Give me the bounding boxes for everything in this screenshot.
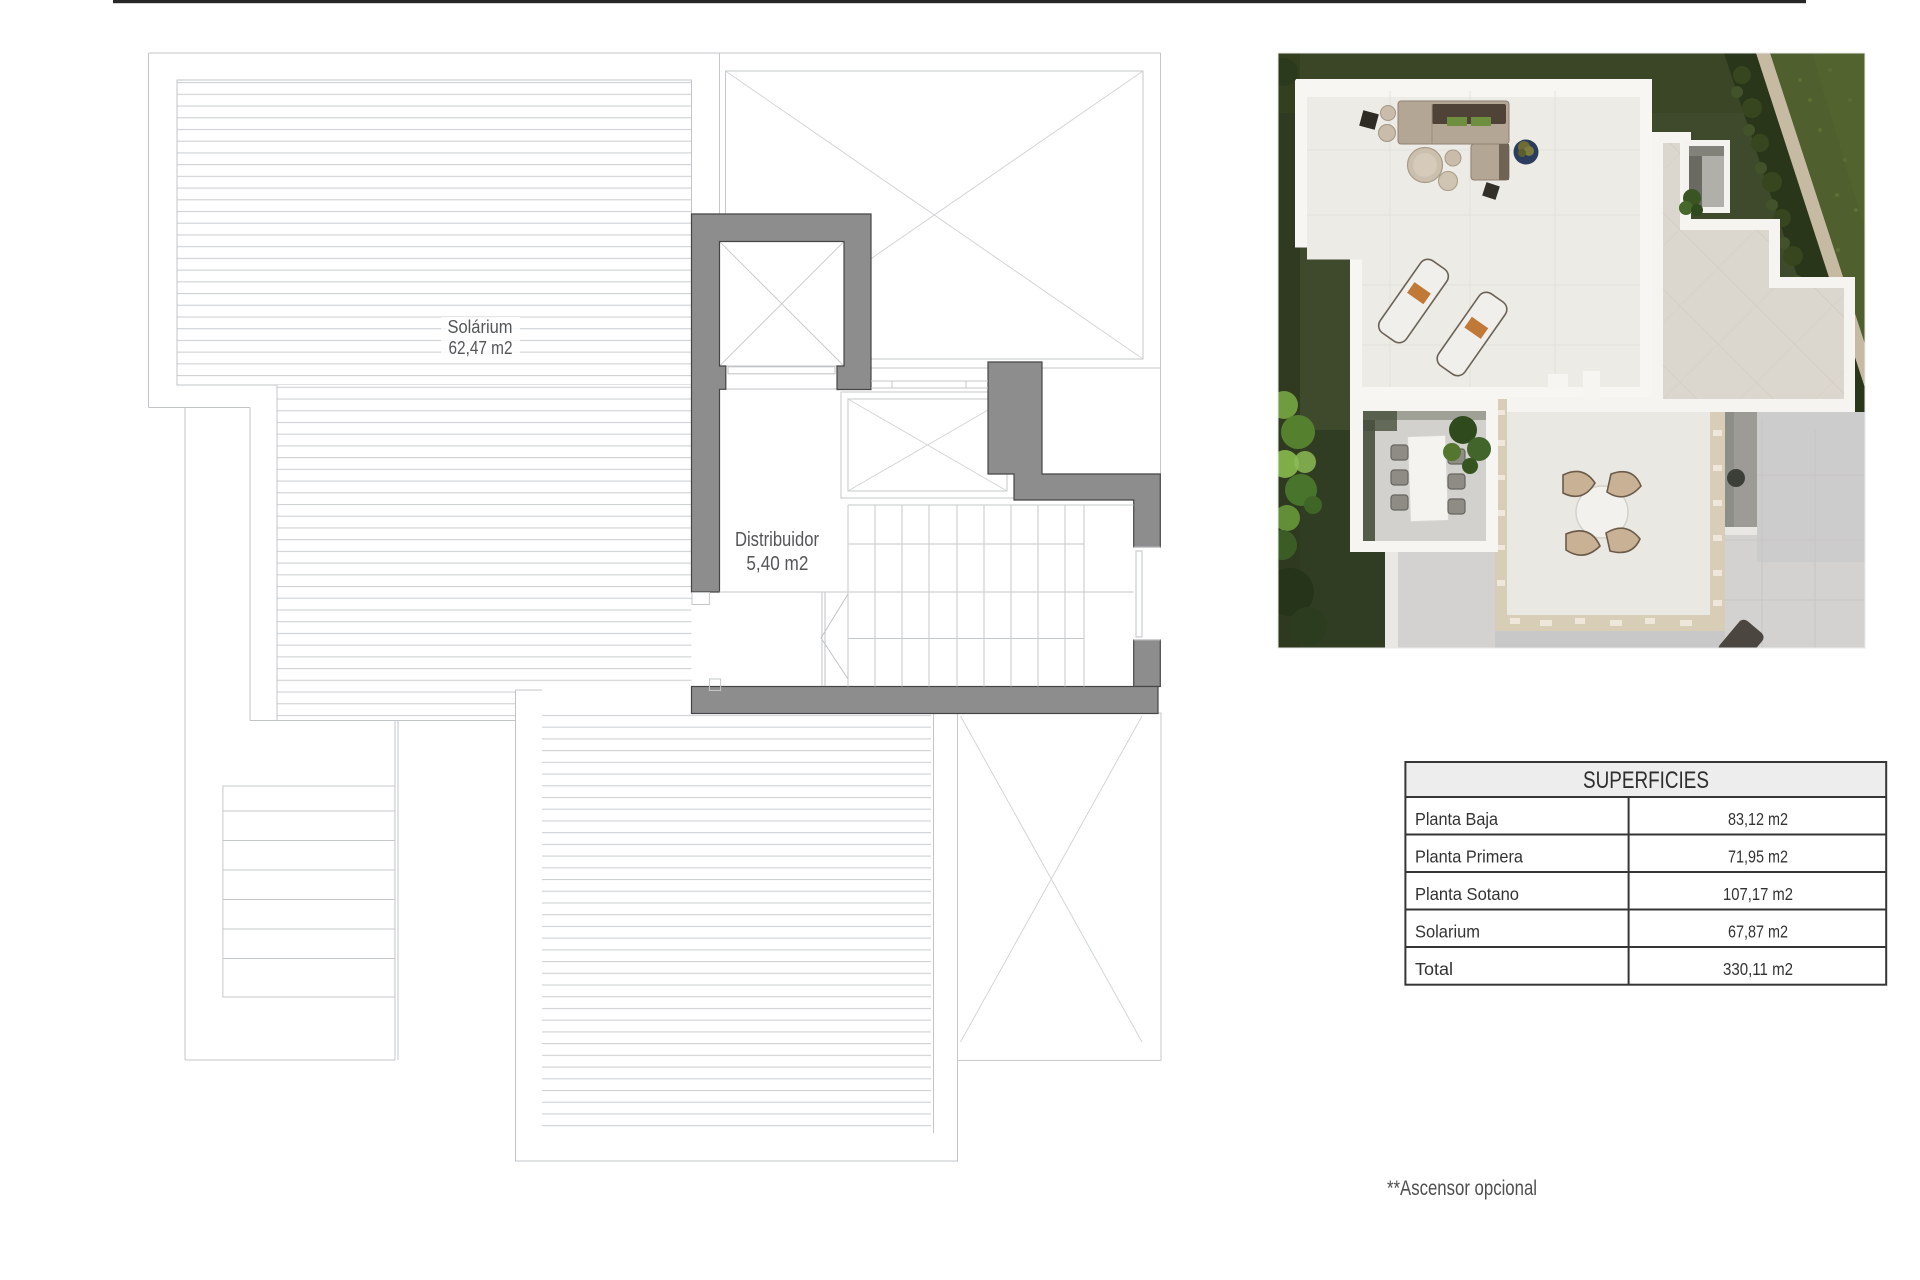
svg-text:Planta Baja: Planta Baja	[1415, 809, 1498, 829]
svg-text:Distribuidor: Distribuidor	[735, 529, 819, 551]
svg-text:SUPERFICIES: SUPERFICIES	[1583, 767, 1709, 794]
svg-text:**Ascensor opcional: **Ascensor opcional	[1387, 1177, 1537, 1200]
svg-text:71,95 m2: 71,95 m2	[1728, 847, 1788, 867]
svg-text:Solárium: Solárium	[448, 316, 513, 337]
svg-text:Solarium: Solarium	[1415, 922, 1480, 942]
svg-text:67,87 m2: 67,87 m2	[1728, 922, 1788, 942]
svg-text:62,47 m2: 62,47 m2	[449, 337, 513, 358]
svg-text:Planta Sotano: Planta Sotano	[1415, 884, 1519, 904]
svg-text:Planta Primera: Planta Primera	[1415, 847, 1523, 867]
svg-text:83,12 m2: 83,12 m2	[1728, 809, 1788, 829]
svg-text:330,11 m2: 330,11 m2	[1723, 959, 1793, 979]
svg-text:Total: Total	[1415, 959, 1453, 979]
svg-text:5,40 m2: 5,40 m2	[746, 553, 808, 575]
svg-text:107,17 m2: 107,17 m2	[1723, 884, 1793, 904]
